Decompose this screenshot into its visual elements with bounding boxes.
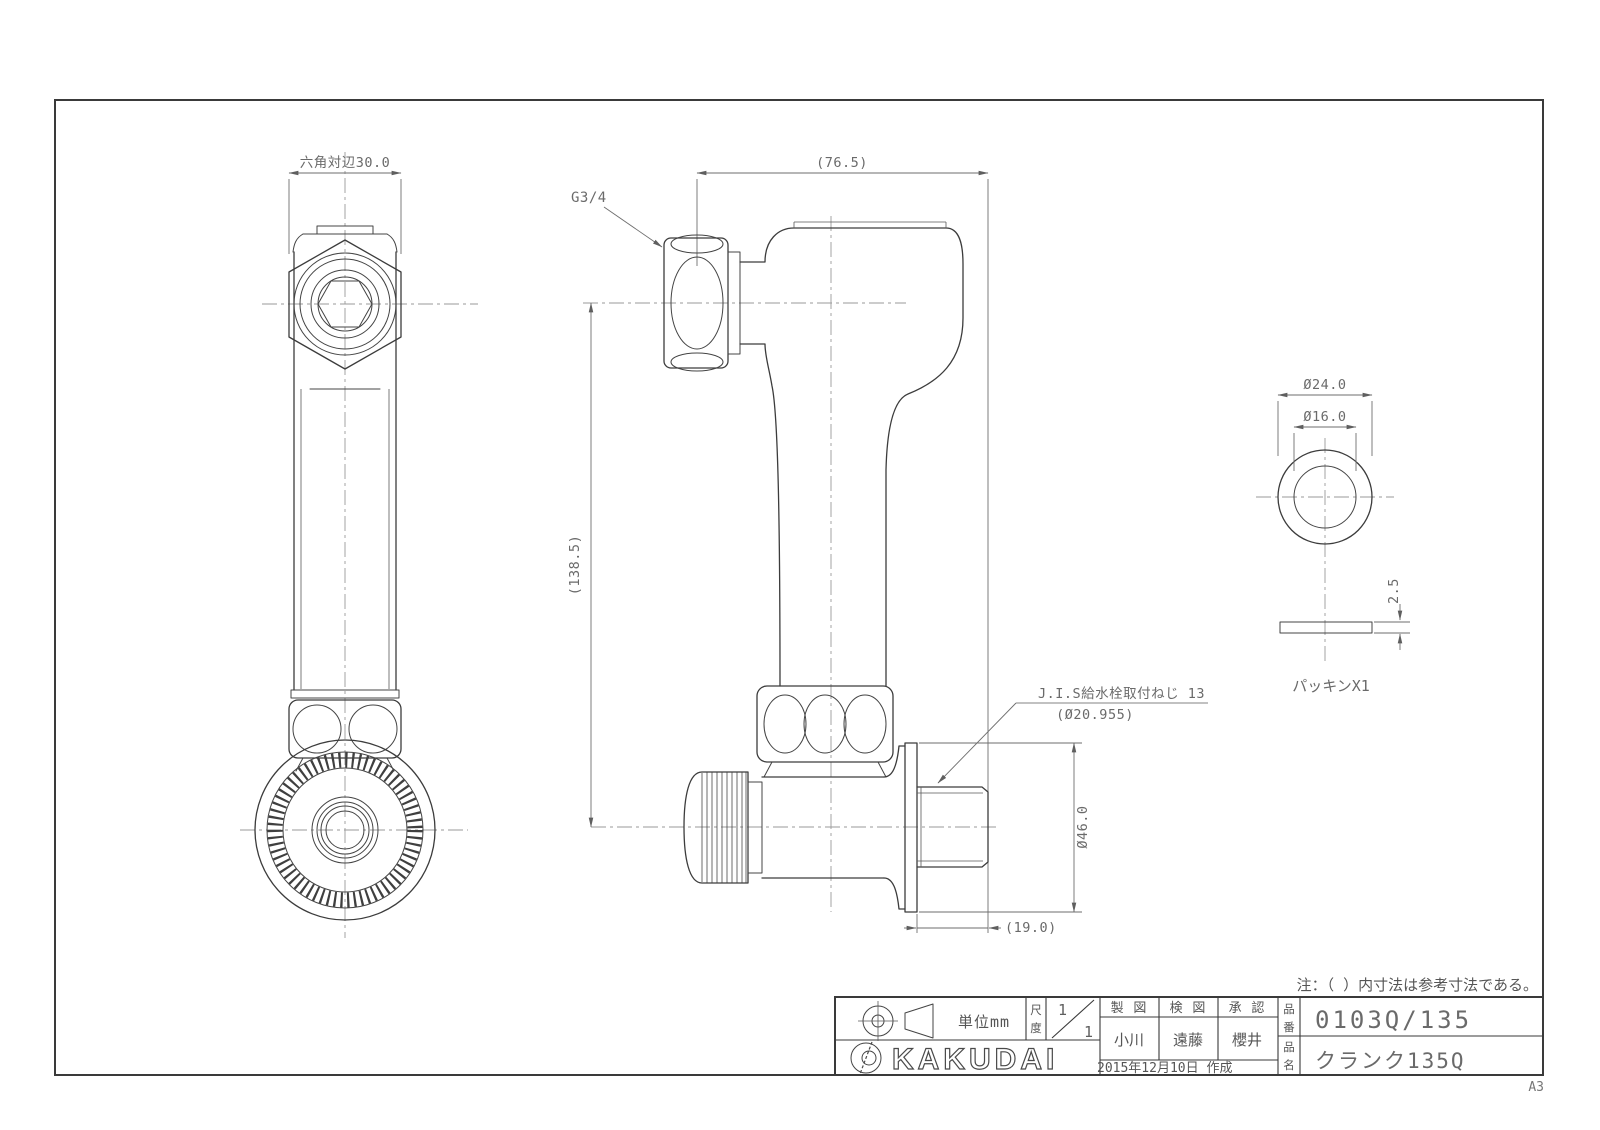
approval-table: 製 図 検 図 承 認 小川 遠藤 櫻井 2015年12月10日 作成 — [1097, 1000, 1265, 1076]
dim-across-flats-text: 六角対辺30.0 — [300, 155, 391, 171]
packing-od-text: Ø24.0 — [1303, 377, 1346, 393]
packing-side-view — [1280, 622, 1372, 633]
wall-thread-dia-text: (Ø20.955) — [1056, 707, 1134, 723]
dim-flange-text: Ø46.0 — [1075, 805, 1091, 848]
wall-thread-pipe — [917, 787, 988, 867]
packing-label: パッキンX1 — [1292, 677, 1370, 695]
front-view: 六角対辺30.0 — [240, 152, 478, 938]
title-block: 単位mm 尺 度 1 1 KAKUDAI 製 図 検 図 承 認 小川 遠藤 櫻… — [835, 997, 1543, 1076]
part-number: 0103Q/135 — [1315, 1006, 1472, 1034]
part-no-label-2: 番 — [1283, 1020, 1295, 1034]
sheet-size-label: A3 — [1528, 1080, 1544, 1095]
scale-cell: 尺 度 1 1 — [1030, 1000, 1094, 1041]
part-no-label-1: 品 — [1283, 1002, 1295, 1016]
scale-denominator: 1 — [1084, 1023, 1093, 1041]
side-view-dim-flange: Ø46.0 — [919, 743, 1091, 912]
brand-name: KAKUDAI — [892, 1043, 1058, 1076]
side-view: (76.5) G3/4 (138.5) — [567, 155, 1208, 936]
scale-label-1: 尺 — [1030, 1003, 1042, 1017]
col-draft-label: 製 図 — [1111, 1001, 1148, 1016]
wall-flange — [905, 743, 917, 912]
third-angle-projection-icon — [858, 1001, 933, 1041]
side-view-dim-width: (76.5) — [697, 155, 988, 933]
frame-border — [55, 100, 1543, 1075]
knurled-cap — [684, 772, 748, 883]
part-name-label-1: 品 — [1283, 1040, 1295, 1054]
top-thread-text: G3/4 — [571, 190, 607, 206]
part-name-label-2: 名 — [1283, 1058, 1295, 1072]
unit-label: 単位mm — [958, 1013, 1010, 1031]
checker-name: 遠藤 — [1173, 1031, 1203, 1049]
packing-thickness-text: 2.5 — [1386, 578, 1402, 604]
creation-date: 2015年12月10日 作成 — [1097, 1061, 1232, 1076]
drafter-name: 小川 — [1114, 1031, 1144, 1049]
wall-thread-callout: J.I.S給水栓取付ねじ 13 (Ø20.955) — [938, 686, 1208, 783]
packing-view: Ø24.0 Ø16.0 2.5 パッキンX1 — [1256, 377, 1410, 695]
packing-id-text: Ø16.0 — [1303, 409, 1346, 425]
dim-width-text: (76.5) — [816, 155, 868, 171]
part-identification: 品 番 品 名 0103Q/135 クランク135Q — [1283, 1002, 1472, 1073]
col-check-label: 検 図 — [1170, 1001, 1207, 1016]
side-view-outline — [664, 222, 988, 912]
wall-thread-text: J.I.S給水栓取付ねじ 13 — [1038, 686, 1205, 702]
reference-dimension-note: 注：（ ）内寸法は参考寸法である。 — [1297, 976, 1538, 994]
dim-thread-len-text: (19.0) — [1005, 920, 1057, 936]
packing-centerlines — [1256, 438, 1394, 664]
drawing-frame: A3 — [55, 100, 1544, 1095]
technical-drawing-sheet: A3 六角対辺30.0 — [0, 0, 1600, 1130]
scale-label-2: 度 — [1030, 1021, 1042, 1035]
scale-numerator: 1 — [1058, 1001, 1067, 1019]
packing-dim-thickness: 2.5 — [1374, 578, 1410, 650]
side-view-dim-height: (138.5) — [567, 303, 591, 827]
kakudai-logo: KAKUDAI — [851, 1042, 1058, 1076]
front-view-centerlines — [240, 152, 478, 938]
col-approve-label: 承 認 — [1229, 1000, 1266, 1016]
dim-height-text: (138.5) — [567, 535, 583, 595]
side-view-thread-callout: G3/4 — [571, 190, 662, 247]
approver-name: 櫻井 — [1232, 1031, 1262, 1049]
side-view-dim-thread-len: (19.0) — [904, 914, 1057, 936]
side-view-centerlines — [583, 216, 1000, 912]
part-name: クランク135Q — [1315, 1049, 1466, 1073]
